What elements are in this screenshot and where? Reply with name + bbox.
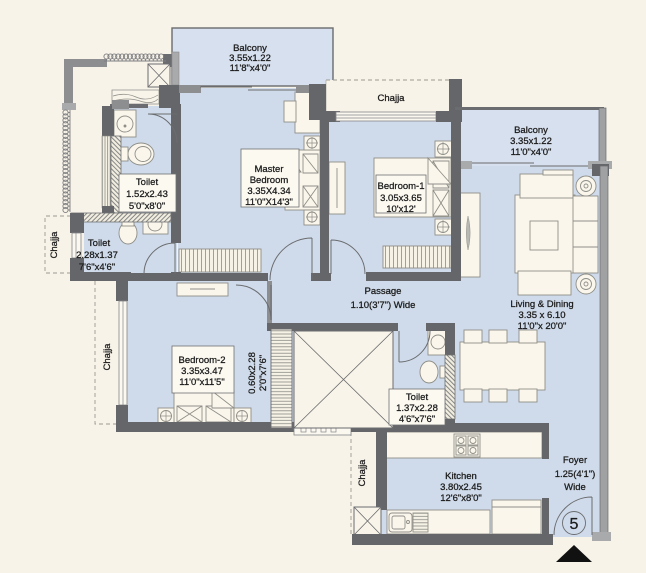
svg-text:10'x12': 10'x12' bbox=[386, 204, 416, 215]
svg-text:11'0"X14'3": 11'0"X14'3" bbox=[245, 197, 293, 208]
svg-text:0.60x2.28: 0.60x2.28 bbox=[247, 352, 258, 394]
svg-text:3.35x1.22: 3.35x1.22 bbox=[510, 136, 552, 147]
svg-text:Passage: Passage bbox=[365, 286, 402, 297]
svg-text:3.80x2.45: 3.80x2.45 bbox=[440, 482, 482, 493]
svg-text:1.25(4'1"): 1.25(4'1") bbox=[555, 469, 596, 480]
svg-text:5: 5 bbox=[570, 516, 579, 533]
svg-text:Toilet: Toilet bbox=[136, 177, 159, 188]
svg-text:Bedroom: Bedroom bbox=[250, 175, 289, 186]
svg-text:5'0"x8'0": 5'0"x8'0" bbox=[129, 201, 165, 212]
svg-text:11'8"x4'0": 11'8"x4'0" bbox=[230, 63, 271, 74]
svg-text:1.37x2.28: 1.37x2.28 bbox=[396, 403, 438, 414]
svg-text:Wide: Wide bbox=[564, 482, 586, 493]
svg-text:Toilet: Toilet bbox=[88, 238, 111, 249]
svg-text:Master: Master bbox=[254, 164, 283, 175]
svg-text:Bedroom-1: Bedroom-1 bbox=[378, 181, 425, 192]
svg-text:11'0"x4'0": 11'0"x4'0" bbox=[511, 147, 552, 158]
svg-text:Chajja: Chajja bbox=[357, 459, 368, 487]
svg-text:Chajja: Chajja bbox=[102, 343, 113, 371]
svg-text:12'6"x8'0": 12'6"x8'0" bbox=[440, 493, 482, 504]
svg-text:3.05x3.65: 3.05x3.65 bbox=[380, 193, 422, 204]
svg-text:7'6"x4'6": 7'6"x4'6" bbox=[79, 262, 115, 273]
svg-text:3.35 x 6.10: 3.35 x 6.10 bbox=[518, 310, 565, 321]
svg-text:Kitchen: Kitchen bbox=[445, 471, 477, 482]
svg-text:Toilet: Toilet bbox=[406, 392, 429, 403]
svg-text:3.35x3.47: 3.35x3.47 bbox=[181, 366, 223, 377]
svg-text:1.52x2.43: 1.52x2.43 bbox=[126, 189, 168, 200]
svg-text:Chajja: Chajja bbox=[378, 93, 406, 104]
svg-text:11'0"x11'5": 11'0"x11'5" bbox=[179, 377, 224, 388]
svg-text:2'0"x7'6": 2'0"x7'6" bbox=[258, 355, 269, 391]
svg-text:3.35X4.34: 3.35X4.34 bbox=[247, 186, 290, 197]
svg-text:4'6"x7'6": 4'6"x7'6" bbox=[399, 414, 435, 425]
svg-text:Chajja: Chajja bbox=[49, 231, 60, 259]
svg-text:Balcony: Balcony bbox=[514, 125, 548, 136]
svg-text:11'0"x 20'0": 11'0"x 20'0" bbox=[518, 321, 567, 332]
svg-text:Bedroom-2: Bedroom-2 bbox=[179, 355, 226, 366]
svg-text:Foyer: Foyer bbox=[563, 455, 587, 466]
svg-text:Living & Dining: Living & Dining bbox=[510, 299, 573, 310]
svg-text:1.10(3'7") Wide: 1.10(3'7") Wide bbox=[351, 300, 416, 311]
svg-text:2.28x1.37: 2.28x1.37 bbox=[76, 250, 118, 261]
